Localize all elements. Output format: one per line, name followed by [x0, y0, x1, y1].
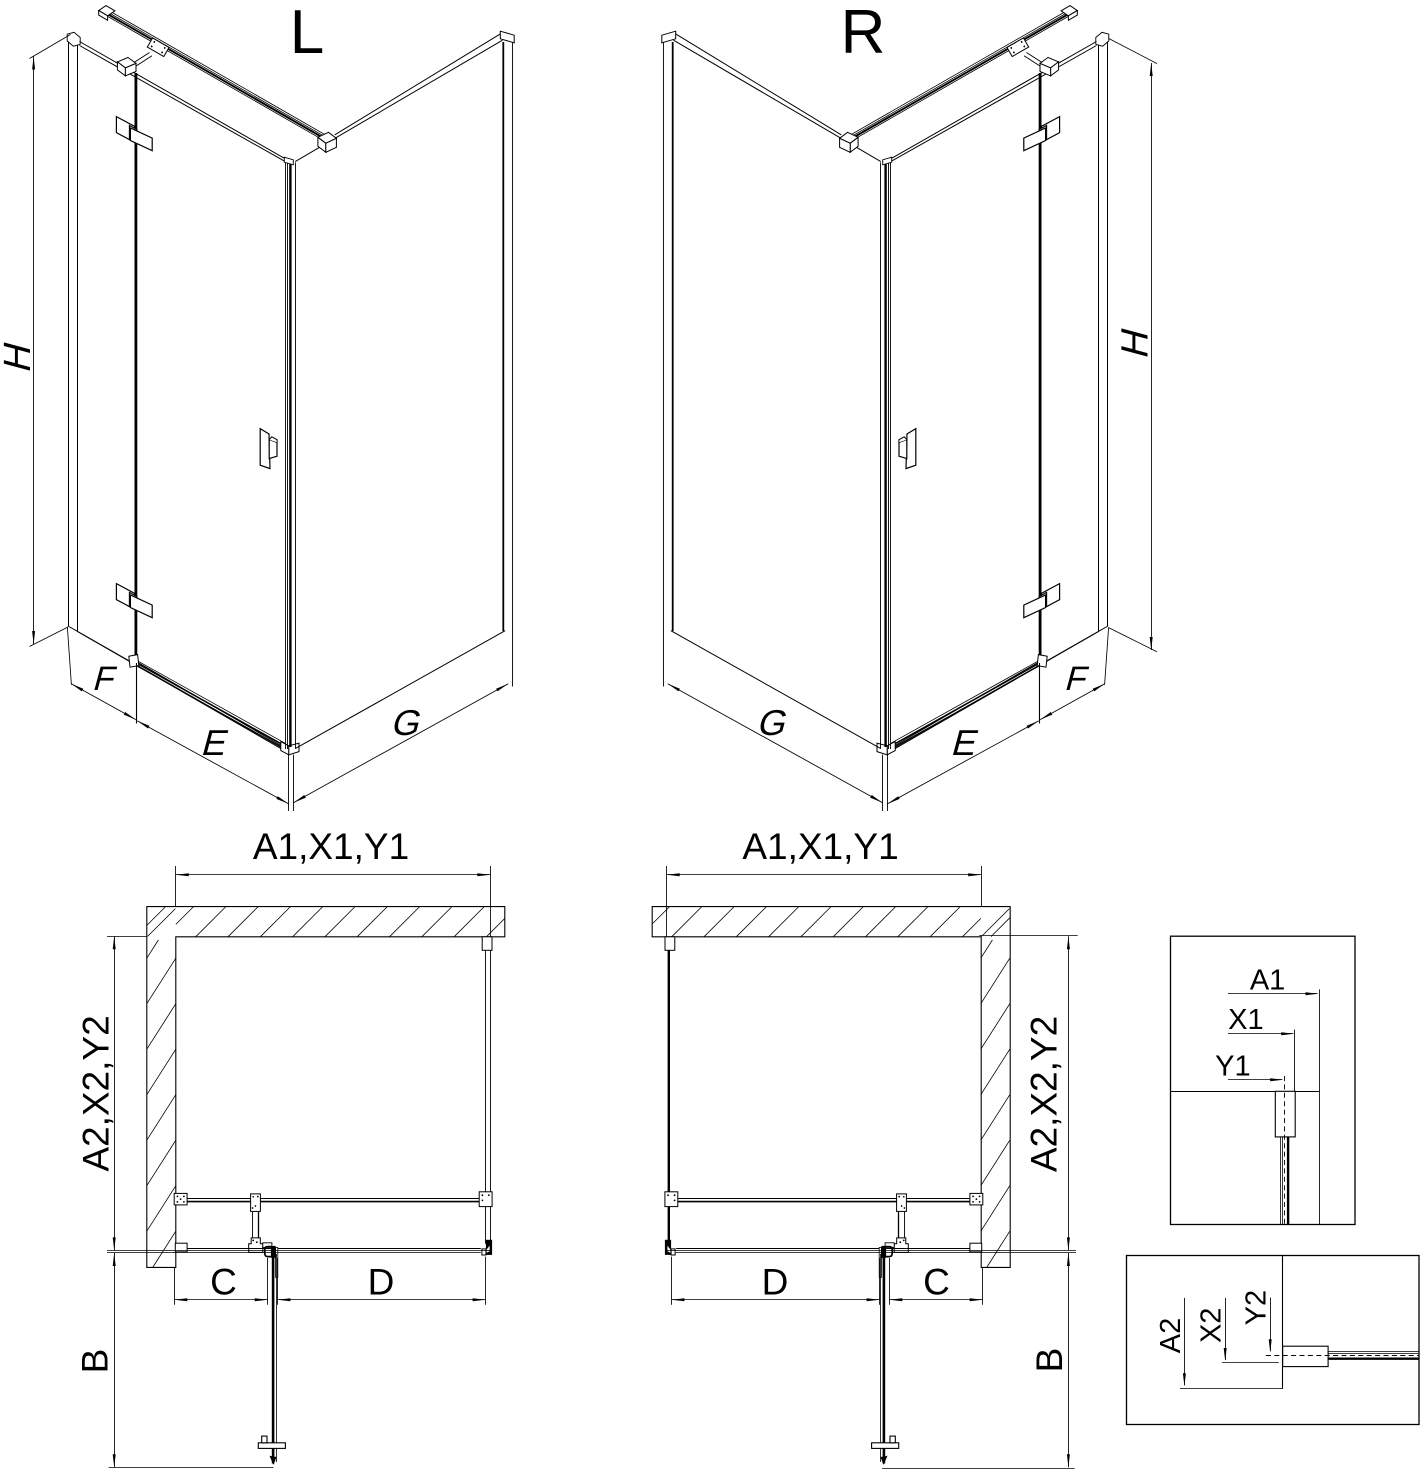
svg-text:X2: X2 [1196, 1308, 1228, 1343]
svg-text:R: R [841, 0, 886, 67]
svg-text:A2,X2,Y2: A2,X2,Y2 [1024, 1016, 1065, 1172]
svg-text:A2,X2,Y2: A2,X2,Y2 [76, 1015, 117, 1171]
svg-text:A2: A2 [1155, 1318, 1187, 1353]
svg-text:A1,X1,Y1: A1,X1,Y1 [253, 826, 409, 867]
svg-text:Y1: Y1 [1215, 1050, 1250, 1082]
svg-text:B: B [75, 1349, 116, 1374]
svg-text:B: B [1029, 1348, 1070, 1373]
svg-text:D: D [762, 1262, 789, 1303]
svg-text:A1,X1,Y1: A1,X1,Y1 [742, 826, 898, 867]
svg-text:Y2: Y2 [1241, 1290, 1273, 1325]
svg-text:C: C [210, 1262, 237, 1303]
svg-text:X1: X1 [1228, 1004, 1263, 1036]
svg-text:C: C [923, 1262, 950, 1303]
svg-text:L: L [290, 0, 324, 67]
svg-text:D: D [368, 1262, 395, 1303]
svg-text:A1: A1 [1250, 965, 1285, 997]
